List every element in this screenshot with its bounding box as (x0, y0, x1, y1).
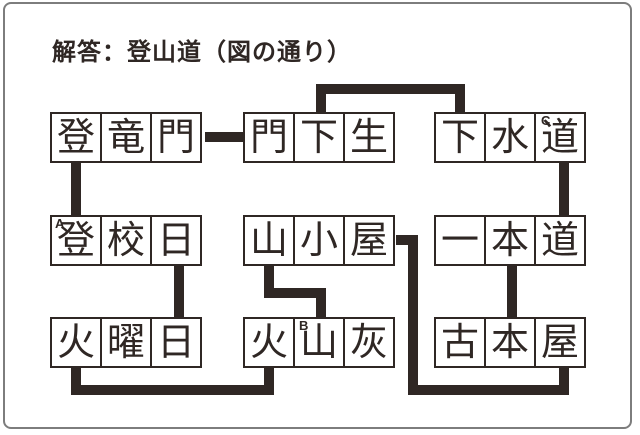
connector-mon-mon (205, 132, 243, 142)
kanji-cell: 校 (100, 215, 152, 266)
connector-hon-hon (507, 264, 517, 319)
kanji-cell: 屋 (343, 215, 395, 266)
connector-michi-michi (559, 161, 569, 217)
kanji-cell: 火 (50, 317, 102, 368)
kanji-cell: 門 (150, 112, 202, 163)
kanji-cell: 小 (293, 215, 345, 266)
kanji-cell: 下 (434, 112, 486, 163)
kanji-cell: 登 (50, 112, 102, 163)
word-box-ipponmichi: 一 本 道 (434, 215, 586, 266)
kanji-cell: 火 (243, 317, 295, 368)
kanji-cell: 灰 (343, 317, 395, 368)
kanji-cell: 生 (343, 112, 395, 163)
connector-shita-shita-horiz (316, 84, 465, 94)
connector-shita-shita-vert-right (455, 84, 465, 114)
word-box-gesuido: 下 水 道 (434, 112, 586, 163)
kanji-cell: 本 (484, 215, 536, 266)
kanji-cell: 竜 (100, 112, 152, 163)
kanji-cell: 水 (484, 112, 536, 163)
word-box-yamagoya: 山 小 屋 (243, 215, 395, 266)
connector-yama-yama-vert2 (316, 288, 326, 319)
word-box-toryumon: 登 竜 門 (50, 112, 202, 163)
kanji-cell: 曜 (100, 317, 152, 368)
connector-nobo-nobo (71, 161, 81, 217)
kanji-cell: 道 (534, 215, 586, 266)
kanji-cell: 山 (243, 215, 295, 266)
word-box-monkasei: 門 下 生 (243, 112, 395, 163)
puzzle-answer-diagram: 解答：登山道（図の通り） 登 竜 門 門 下 生 下 水 道 登 校 日 山 小… (0, 0, 640, 435)
connector-ka-ka-horiz (71, 385, 274, 395)
kanji-cell: 本 (484, 317, 536, 368)
mark-b-label: B (299, 319, 308, 332)
connector-ya-ya-vert1 (408, 235, 418, 395)
connector-ya-ya-horiz (408, 385, 569, 395)
mark-c-label: C (541, 114, 550, 127)
word-box-kayobi: 火 曜 日 (50, 317, 202, 368)
word-box-furuhonya: 古 本 屋 (434, 317, 586, 368)
kanji-cell: 日 (150, 215, 202, 266)
connector-hi-hi (174, 264, 184, 319)
kanji-cell: 古 (434, 317, 486, 368)
mark-a-label: A (55, 217, 64, 230)
kanji-cell: 下 (293, 112, 345, 163)
kanji-cell: 門 (243, 112, 295, 163)
kanji-cell: 屋 (534, 317, 586, 368)
connector-ya-ya-vert2 (559, 366, 569, 395)
kanji-cell: 一 (434, 215, 486, 266)
word-box-kazanbai: 火 山 灰 (243, 317, 395, 368)
answer-title: 解答：登山道（図の通り） (52, 40, 352, 66)
kanji-cell: 日 (150, 317, 202, 368)
connector-ka-ka-vert-right (264, 366, 274, 395)
word-box-tokobi: 登 校 日 (50, 215, 202, 266)
